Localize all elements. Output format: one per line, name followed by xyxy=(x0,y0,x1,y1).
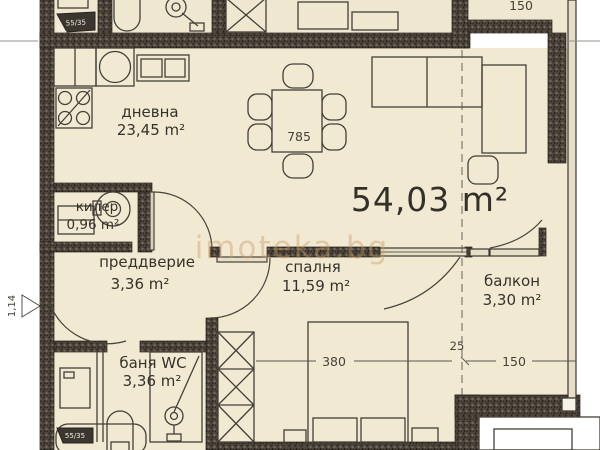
total-area-label: 54,03 m² xyxy=(351,180,509,219)
wall-bath-east xyxy=(206,318,218,450)
room-area-living: 23,45 m² xyxy=(117,121,185,139)
floor-plan-image: imoteka.bg дневна 23,45 m² килер 0,96 m²… xyxy=(0,0,600,450)
wall-window-jamb xyxy=(539,228,546,256)
room-label-bedroom: спалня xyxy=(285,258,341,276)
dim-bed-width: 380 xyxy=(322,354,346,369)
room-area-balcony: 3,30 m² xyxy=(483,291,542,309)
neighbor-room xyxy=(479,417,600,450)
wall-top xyxy=(40,33,470,48)
balcony-door-leaf xyxy=(470,249,489,256)
balcony-outer-wall xyxy=(568,0,576,398)
neighbor-shaft xyxy=(562,398,576,411)
wall-closet-north xyxy=(54,183,152,192)
room-area-bedroom: 11,59 m² xyxy=(282,277,350,295)
wall-upper-2 xyxy=(212,0,226,33)
chair xyxy=(283,154,313,178)
chair xyxy=(248,124,272,150)
shaft-label-top: 55/35 xyxy=(66,18,87,27)
wall-closet-south xyxy=(40,242,132,252)
room-label-balcony: балкон xyxy=(484,272,540,290)
shaft-label-bottom: 55/35 xyxy=(65,432,85,440)
chair xyxy=(283,64,313,88)
room-area-bathroom: 3,36 m² xyxy=(123,372,182,390)
window-east xyxy=(490,249,539,256)
wall-topright-horiz xyxy=(468,20,552,33)
dim-dining: 785 xyxy=(287,129,311,144)
dim-balcony-wall: 25 xyxy=(450,339,465,353)
wall-upper-1 xyxy=(98,0,112,33)
level-marker-triangle xyxy=(22,295,40,317)
wall-left xyxy=(40,0,54,450)
wall-living-east xyxy=(548,33,566,163)
room-label-living: дневна xyxy=(121,103,178,121)
wall-bottomright-horiz xyxy=(455,395,580,417)
wall-bath-north-2 xyxy=(140,341,207,352)
room-label-bathroom: баня WC xyxy=(119,354,186,372)
floor-plan-svg: imoteka.bg дневна 23,45 m² килер 0,96 m²… xyxy=(0,0,600,450)
dim-balcony-width: 150 xyxy=(502,354,526,369)
room-label-vestibule: преддверие xyxy=(99,253,195,271)
chair xyxy=(248,94,272,120)
chair xyxy=(322,124,346,150)
room-label-closet: килер xyxy=(76,199,118,215)
chair xyxy=(322,94,346,120)
level-marker-label: 1,14 xyxy=(7,295,18,317)
wall-upper-right xyxy=(452,0,468,48)
room-area-closet: 0,96 m² xyxy=(67,217,120,233)
door-leaf-living xyxy=(150,192,154,250)
room-area-vestibule: 3,36 m² xyxy=(111,275,170,293)
dim-neighbor-balcony: 150 xyxy=(509,0,533,13)
